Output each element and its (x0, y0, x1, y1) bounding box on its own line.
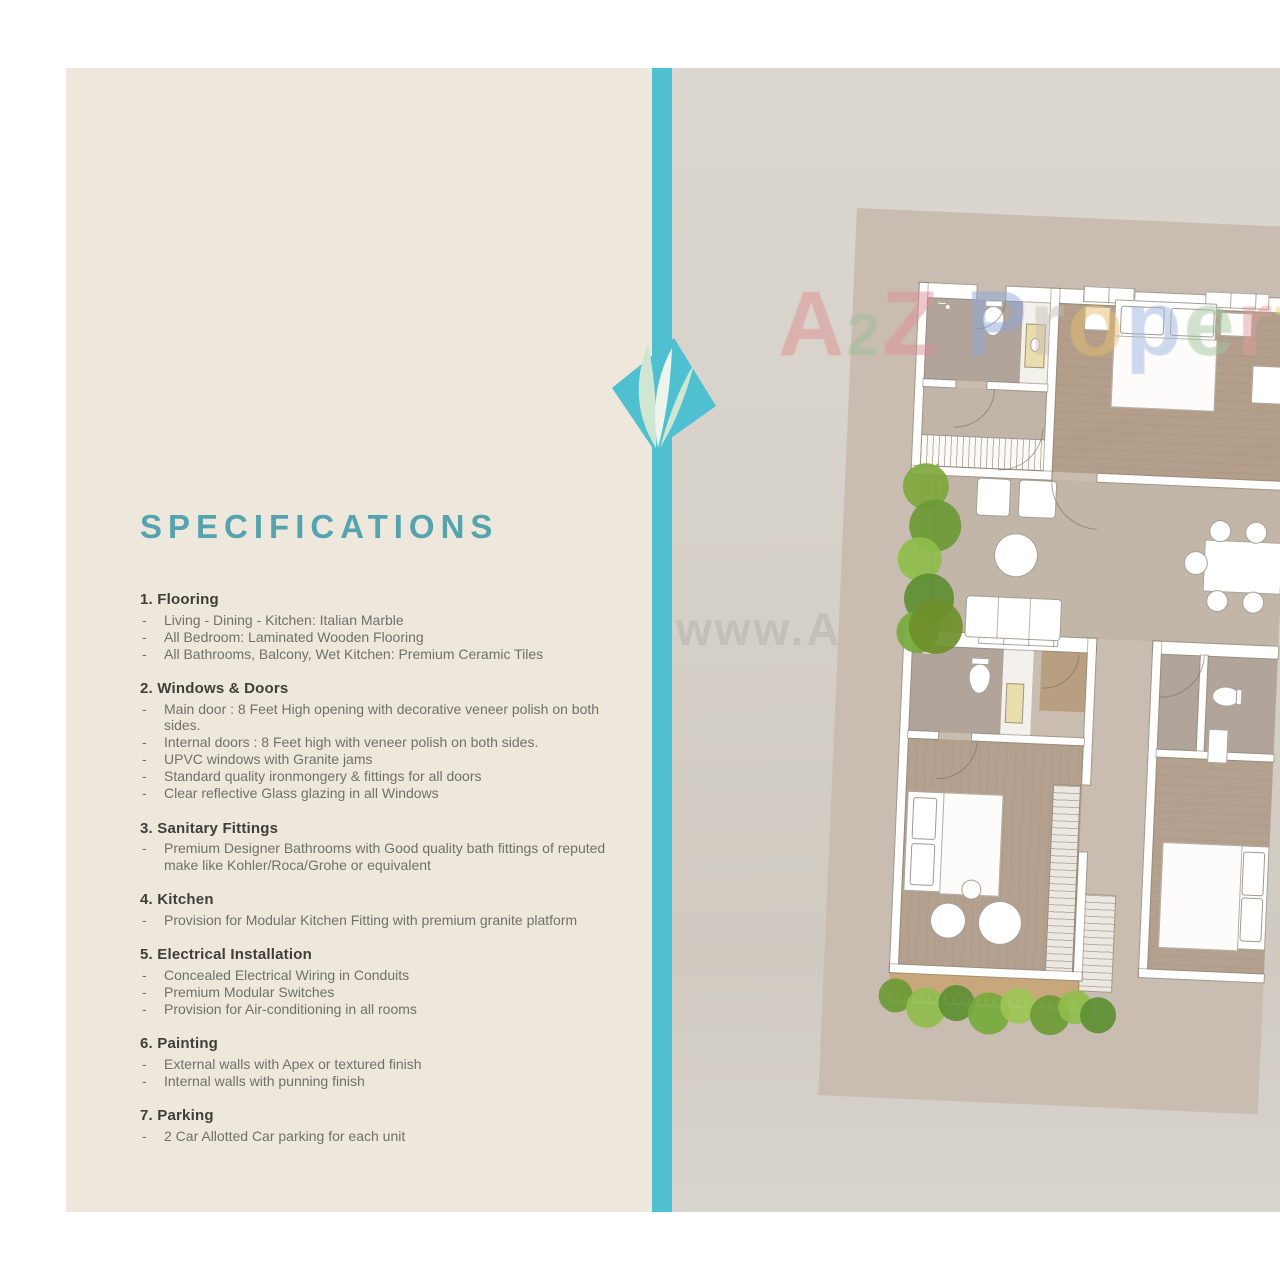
spec-text: Living - Dining - Kitchen: Italian Marbl… (164, 612, 404, 628)
bullet-dash: - (142, 1056, 147, 1073)
spec-item: -2 Car Allotted Car parking for each uni… (140, 1128, 610, 1145)
spec-item: -Standard quality ironmongery & fittings… (140, 768, 610, 785)
bullet-dash: - (142, 734, 147, 751)
spec-item: -All Bathrooms, Balcony, Wet Kitchen: Pr… (140, 646, 610, 663)
spec-text: All Bedroom: Laminated Wooden Flooring (164, 629, 424, 645)
spec-text: Provision for Modular Kitchen Fitting wi… (164, 912, 577, 928)
brand-logo-icon (598, 330, 723, 452)
bullet-dash: - (142, 768, 147, 785)
watermark-letter: P (966, 272, 1029, 377)
armchair (976, 478, 1012, 517)
spec-text: Internal walls with punning finish (164, 1073, 365, 1089)
spec-text: Standard quality ironmongery & fittings … (164, 768, 482, 784)
bullet-dash: - (142, 701, 147, 718)
spec-text: Internal doors : 8 Feet high with veneer… (164, 734, 538, 750)
watermark-letter: 2 (846, 300, 881, 369)
bullet-dash: - (142, 785, 147, 802)
spec-text: All Bathrooms, Balcony, Wet Kitchen: Pre… (164, 646, 543, 662)
watermark-letter: e (1184, 272, 1237, 377)
tree-icon (1079, 997, 1117, 1035)
watermark-letter: A (778, 272, 846, 377)
bullet-dash: - (142, 967, 147, 984)
spec-text: Provision for Air-conditioning in all ro… (164, 1001, 417, 1017)
spec-item: -All Bedroom: Laminated Wooden Flooring (140, 629, 610, 646)
section-heading-parking: 7. Parking (140, 1108, 610, 1125)
watermark-letter: o (1067, 272, 1125, 377)
pillow (1241, 851, 1265, 896)
watermark-letter: r (1237, 272, 1275, 377)
sink-icon (1207, 729, 1228, 764)
spec-item: -External walls with Apex or textured fi… (140, 1056, 610, 1073)
bullet-dash: - (142, 629, 147, 646)
toilet-tank (1236, 689, 1243, 705)
spec-item: -Provision for Modular Kitchen Fitting w… (140, 912, 610, 929)
teal-divider (652, 68, 672, 1212)
bullet-dash: - (142, 912, 147, 929)
spec-text: Clear reflective Glass glazing in all Wi… (164, 785, 439, 801)
page-title: SPECIFICATIONS (140, 508, 498, 546)
pillow (912, 797, 938, 840)
spec-text: Main door : 8 Feet High opening with dec… (164, 701, 599, 734)
spec-text: Premium Modular Switches (164, 984, 334, 1000)
spec-item: -Clear reflective Glass glazing in all W… (140, 785, 610, 802)
sofa (964, 595, 1062, 641)
section-heading-windows-doors: 2. Windows & Doors (140, 681, 610, 698)
section-heading-sanitary: 3. Sanitary Fittings (140, 821, 610, 838)
spec-item: -Main door : 8 Feet High opening with de… (140, 701, 610, 734)
spec-item: -Internal doors : 8 Feet high with venee… (140, 734, 610, 751)
bullet-dash: - (142, 1128, 147, 1145)
brand-watermark: A2ZProperty (778, 272, 1280, 377)
spec-item: -UPVC windows with Granite jams (140, 751, 610, 768)
vanity-counter (1005, 683, 1025, 724)
watermark-letter: p (1125, 272, 1183, 377)
section-heading-electrical: 5. Electrical Installation (140, 947, 610, 964)
dining-table (1203, 539, 1280, 594)
spec-text: Concealed Electrical Wiring in Conduits (164, 967, 409, 983)
spec-item: -Internal walls with punning finish (140, 1073, 610, 1090)
spec-text: Premium Designer Bathrooms with Good qua… (164, 840, 605, 873)
bullet-dash: - (142, 1001, 147, 1018)
watermark-letter: r (1029, 272, 1067, 377)
spec-item: -Concealed Electrical Wiring in Conduits (140, 967, 610, 984)
bullet-dash: - (142, 1073, 147, 1090)
wall (908, 731, 938, 739)
brochure-page: SPECIFICATIONS 1. Flooring -Living - Din… (0, 0, 1280, 1280)
specifications-panel: SPECIFICATIONS 1. Flooring -Living - Din… (66, 68, 652, 1212)
spec-text: UPVC windows with Granite jams (164, 751, 373, 767)
pillow (1239, 897, 1263, 942)
specifications-list: 1. Flooring -Living - Dining - Kitchen: … (140, 573, 610, 1145)
spec-item: -Living - Dining - Kitchen: Italian Marb… (140, 612, 610, 629)
bed-blanket (1158, 842, 1243, 951)
watermark-letter: t (1275, 272, 1280, 377)
bullet-dash: - (142, 840, 147, 857)
pillow (910, 843, 936, 886)
bullet-dash: - (142, 984, 147, 1001)
section-heading-kitchen: 4. Kitchen (140, 892, 610, 909)
spec-item: -Provision for Air-conditioning in all r… (140, 1001, 610, 1018)
spec-item: -Premium Modular Switches (140, 984, 610, 1001)
section-heading-painting: 6. Painting (140, 1036, 610, 1053)
toilet-tank (971, 657, 989, 665)
spec-item: -Premium Designer Bathrooms with Good qu… (140, 840, 610, 873)
bullet-dash: - (142, 751, 147, 768)
bullet-dash: - (142, 646, 147, 663)
spec-text: External walls with Apex or textured fin… (164, 1056, 422, 1072)
section-heading-flooring: 1. Flooring (140, 592, 610, 609)
spec-text: 2 Car Allotted Car parking for each unit (164, 1128, 405, 1144)
bullet-dash: - (142, 612, 147, 629)
wall (923, 379, 955, 387)
watermark-letter: Z (882, 272, 940, 377)
